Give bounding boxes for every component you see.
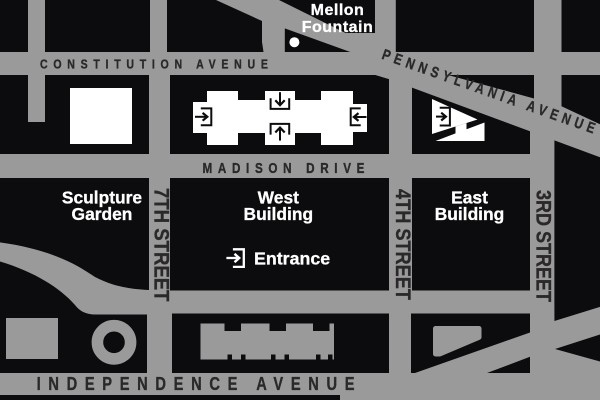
svg-text:Building: Building: [244, 204, 314, 224]
svg-text:Mellon: Mellon: [311, 2, 365, 19]
svg-text:INDEPENDENCE AVENUE: INDEPENDENCE AVENUE: [37, 373, 363, 394]
svg-text:MADISON DRIVE: MADISON DRIVE: [202, 160, 370, 177]
svg-text:4TH STREET: 4TH STREET: [391, 189, 414, 300]
svg-text:Building: Building: [435, 204, 505, 224]
svg-text:Fountain: Fountain: [302, 19, 374, 36]
svg-text:7TH STREET: 7TH STREET: [150, 188, 173, 302]
svg-text:3RD STREET: 3RD STREET: [532, 190, 555, 302]
svg-text:CONSTITUTION AVENUE: CONSTITUTION AVENUE: [40, 56, 274, 71]
svg-text:Entrance: Entrance: [254, 248, 330, 268]
svg-text:Garden: Garden: [72, 204, 133, 224]
